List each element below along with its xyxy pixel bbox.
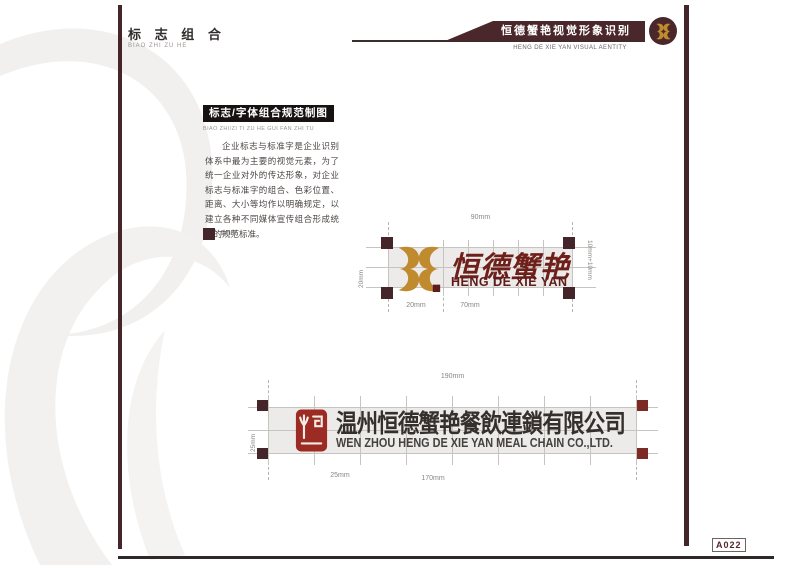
logo-wordmark-en: HENG DE XIE YAN xyxy=(451,275,568,289)
dim-bottom-70mm: 70mm xyxy=(440,302,500,309)
right-edge-bar xyxy=(684,5,689,546)
unit-legend-swatch xyxy=(203,228,215,240)
page-code-badge: A022 xyxy=(712,538,746,552)
section-heading-pinyin: BIAO ZHI/ZI TI ZU HE GUI FAN ZHI TU xyxy=(203,126,314,132)
vi-manual-page: 标 志 组 合 BIAO ZHI ZU HE 恒德蟹艳视觉形象识别 HENG D… xyxy=(0,0,800,565)
registration-mark xyxy=(257,400,268,411)
dim-top-190mm: 190mm xyxy=(268,373,637,380)
banner-title: 恒德蟹艳视觉形象识别 xyxy=(501,21,631,41)
grid-line xyxy=(443,240,444,296)
grid-line xyxy=(268,396,269,465)
company-name-cn: 温州恒德蟹艳餐飲連鎖有限公司 xyxy=(336,404,625,440)
dim-left-20mm: 20mm xyxy=(358,250,365,288)
dim-top-90mm: 90mm xyxy=(388,214,573,221)
registration-mark xyxy=(381,237,393,249)
header-banner: 恒德蟹艳视觉形象识别 xyxy=(445,21,645,41)
registration-mark xyxy=(381,287,393,299)
brand-badge xyxy=(649,17,677,45)
company-name-en: WEN ZHOU HENG DE XIE YAN MEAL CHAIN CO.,… xyxy=(336,436,613,450)
registration-mark xyxy=(637,400,648,411)
registration-mark xyxy=(637,448,648,459)
left-edge-bar xyxy=(118,5,122,549)
grid-line xyxy=(248,453,658,454)
dim-left-25mm: 25mm xyxy=(250,412,257,452)
section-body-text: 企业标志与标准字是企业识别体系中最为主要的视觉元素，为了统一企业对外的传达形象，… xyxy=(205,139,339,241)
dim-bottom-25mm: 25mm xyxy=(318,472,362,479)
unit-legend-label: 5mm xyxy=(221,230,237,237)
dim-right-10mm: 10mm+10mm xyxy=(586,240,593,298)
page-title: 标 志 组 合 xyxy=(128,24,226,43)
bottom-rule xyxy=(118,556,774,559)
section-heading: 标志/字体组合规范制图 xyxy=(203,105,334,122)
hengde-seal-stamp-icon xyxy=(295,409,328,452)
dim-bottom-20mm: 20mm xyxy=(390,302,442,309)
page-title-pinyin: BIAO ZHI ZU HE xyxy=(128,43,187,49)
hengde-crab-monogram-icon xyxy=(396,245,442,293)
dim-bottom-170mm: 170mm xyxy=(403,475,463,482)
banner-subtitle: HENG DE XIE YAN VISUAL AENTITY xyxy=(507,45,633,51)
hengde-crab-monogram-icon xyxy=(655,23,672,40)
watermark-swirl xyxy=(0,0,250,565)
registration-mark xyxy=(257,448,268,459)
